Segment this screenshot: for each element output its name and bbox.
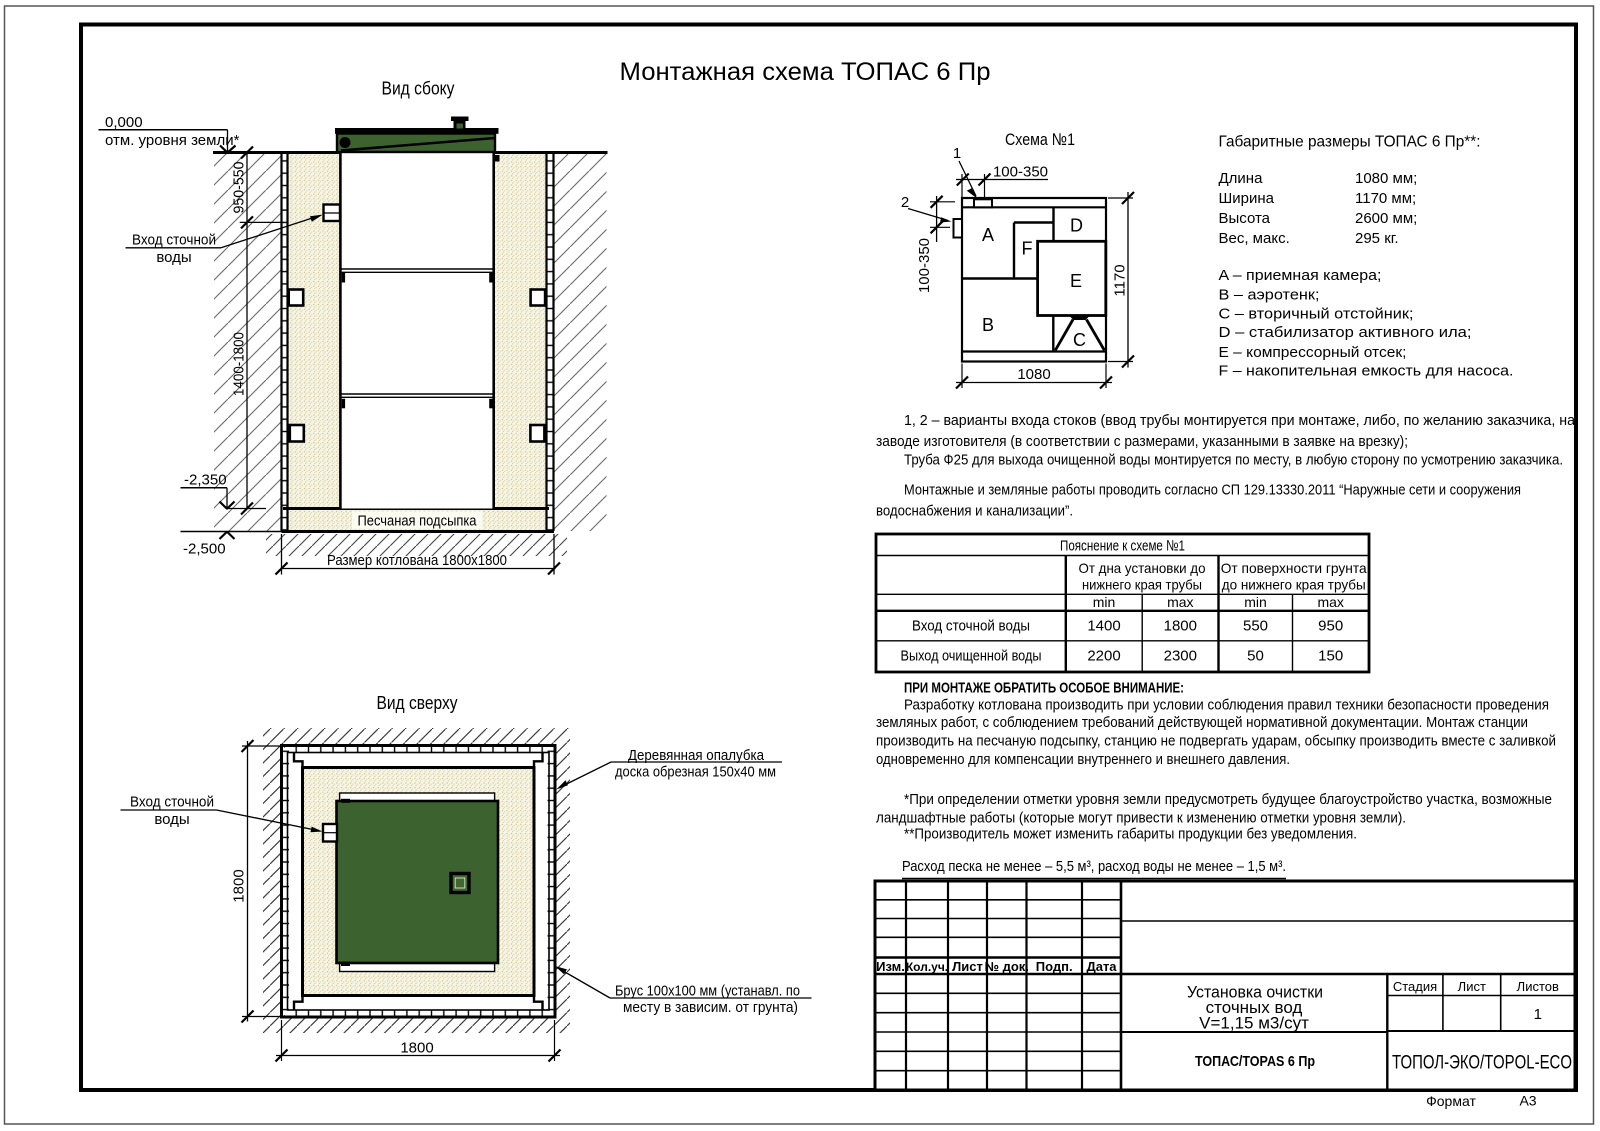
svg-text:А3: А3 — [1519, 1093, 1536, 1109]
svg-text:месту в зависим. от грунта): месту в зависим. от грунта) — [623, 999, 798, 1016]
svg-text:1400-1800: 1400-1800 — [231, 332, 248, 396]
svg-text:Пояснение к схеме №1: Пояснение к схеме №1 — [1060, 538, 1185, 555]
svg-text:C: C — [1073, 330, 1086, 350]
svg-text:Высота: Высота — [1219, 210, 1271, 227]
svg-text:295 кг.: 295 кг. — [1355, 230, 1399, 247]
svg-text:производить на песчаную подсып: производить на песчаную подсыпку, станци… — [876, 733, 1556, 750]
svg-text:1400: 1400 — [1087, 618, 1120, 635]
svg-text:1, 2 – варианты входа стоков: 1, 2 – варианты входа стоков (ввод трубы… — [904, 412, 1576, 429]
svg-text:Схема №1: Схема №1 — [1005, 130, 1075, 149]
svg-text:Вход сточной: Вход сточной — [130, 794, 214, 811]
svg-text:Ширина: Ширина — [1219, 190, 1275, 207]
svg-text:Кол.уч.: Кол.уч. — [906, 960, 948, 974]
svg-text:-2,350: -2,350 — [184, 472, 227, 489]
svg-text:F – накопительная емкость для: F – накопительная емкость для насоса. — [1219, 363, 1514, 380]
svg-text:100-350: 100-350 — [916, 238, 933, 293]
svg-text:B – аэротенк;: B – аэротенк; — [1219, 287, 1320, 304]
svg-text:ТОПАС/TOPAS 6 Пр: ТОПАС/TOPAS 6 Пр — [1195, 1053, 1315, 1070]
svg-text:550: 550 — [1243, 618, 1268, 635]
svg-text:Лист: Лист — [952, 959, 983, 974]
svg-text:1080: 1080 — [1017, 366, 1050, 383]
svg-text:100-350: 100-350 — [993, 164, 1048, 181]
svg-text:Песчаная подсыпка: Песчаная подсыпка — [358, 513, 478, 530]
svg-text:Расход песка не менее – 5,5 м³: Расход песка не менее – 5,5 м³, расход в… — [902, 858, 1286, 875]
svg-text:1800: 1800 — [400, 1040, 433, 1057]
svg-text:D – стабилизатор активного ила: D – стабилизатор активного ила; — [1219, 324, 1472, 341]
svg-text:E: E — [1070, 271, 1082, 291]
svg-text:доска обрезная 150х40 мм: доска обрезная 150х40 мм — [615, 764, 776, 781]
svg-text:От поверхности грунта: От поверхности грунта — [1221, 560, 1367, 576]
svg-text:1080 мм;: 1080 мм; — [1355, 170, 1417, 187]
svg-text:0,000: 0,000 — [105, 114, 143, 131]
svg-text:Подп.: Подп. — [1036, 959, 1073, 974]
svg-text:Разработку котлована производи: Разработку котлована производить при усл… — [904, 697, 1549, 714]
svg-text:2: 2 — [901, 194, 909, 211]
svg-text:E – компрессорный отсек;: E – компрессорный отсек; — [1219, 344, 1407, 361]
svg-text:Вход сточной воды: Вход сточной воды — [912, 618, 1030, 635]
svg-text:1: 1 — [953, 145, 961, 162]
svg-text:Длина: Длина — [1219, 170, 1264, 187]
svg-text:Монтажные и земляные работы пр: Монтажные и земляные работы проводить со… — [904, 482, 1521, 499]
svg-text:воды: воды — [156, 249, 191, 266]
svg-text:950-550: 950-550 — [231, 162, 248, 214]
svg-text:Вес, макс.: Вес, макс. — [1219, 230, 1290, 247]
svg-text:V=1,15 м3/сут: V=1,15 м3/сут — [1199, 1014, 1309, 1033]
svg-text:ПРИ МОНТАЖЕ ОБРАТИТЬ ОСОБОЕ ВН: ПРИ МОНТАЖЕ ОБРАТИТЬ ОСОБОЕ ВНИМАНИЕ: — [904, 680, 1184, 697]
svg-text:земляных работ, с соблюдением: земляных работ, с соблюдением требований… — [876, 714, 1528, 731]
svg-text:до нижнего края трубы: до нижнего края трубы — [1222, 577, 1366, 593]
svg-text:1: 1 — [1534, 1006, 1542, 1023]
svg-text:№ док.: № док. — [984, 959, 1028, 974]
svg-text:воды: воды — [154, 811, 189, 828]
svg-text:одновременно для компенсации в: одновременно для компенсации внутреннего… — [876, 751, 1290, 768]
svg-text:От дна установки до: От дна установки до — [1079, 560, 1206, 576]
svg-text:водоснабжения и канализации”.: водоснабжения и канализации”. — [876, 503, 1073, 520]
svg-text:Выход очищенной воды: Выход очищенной воды — [901, 648, 1042, 665]
svg-text:-2,500: -2,500 — [183, 541, 226, 558]
svg-text:Размер котлована 1800х1800: Размер котлована 1800х1800 — [327, 552, 507, 569]
svg-text:заводе изготовителя (в соответ: заводе изготовителя (в соответствии с ра… — [876, 433, 1408, 450]
svg-text:Вход сточной: Вход сточной — [132, 232, 216, 249]
svg-text:Габаритные размеры ТОПАС 6 Пр*: Габаритные размеры ТОПАС 6 Пр**: — [1219, 134, 1481, 151]
svg-text:C – вторичный отстойник;: C – вторичный отстойник; — [1219, 306, 1414, 323]
svg-text:нижнего края трубы: нижнего края трубы — [1082, 577, 1202, 593]
svg-text:min: min — [1093, 594, 1116, 610]
svg-text:50: 50 — [1247, 648, 1264, 665]
svg-text:Брус 100х100 мм (устанавл. по: Брус 100х100 мм (устанавл. по — [615, 983, 800, 1000]
svg-text:150: 150 — [1318, 648, 1343, 665]
svg-text:1170: 1170 — [1112, 264, 1129, 296]
svg-text:1800: 1800 — [231, 869, 248, 902]
svg-text:Стадия: Стадия — [1393, 979, 1437, 994]
svg-text:B: B — [982, 315, 994, 335]
svg-text:отм. уровня земли*: отм. уровня земли* — [105, 132, 240, 149]
svg-text:min: min — [1244, 594, 1267, 610]
svg-text:950: 950 — [1318, 618, 1343, 635]
svg-text:F: F — [1022, 239, 1033, 259]
svg-text:max: max — [1167, 594, 1193, 610]
svg-text:D: D — [1070, 216, 1083, 236]
svg-text:Формат: Формат — [1426, 1093, 1476, 1109]
svg-text:max: max — [1317, 594, 1343, 610]
svg-text:1800: 1800 — [1164, 618, 1197, 635]
svg-text:1170 мм;: 1170 мм; — [1355, 190, 1416, 207]
svg-text:Изм.: Изм. — [876, 959, 905, 974]
svg-text:Вид сбоку: Вид сбоку — [382, 79, 455, 99]
svg-text:Лист: Лист — [1458, 979, 1486, 994]
svg-text:Листов: Листов — [1517, 979, 1559, 994]
svg-text:ТОПОЛ-ЭКО/TOPOL-ECO: ТОПОЛ-ЭКО/TOPOL-ECO — [1392, 1053, 1572, 1074]
svg-text:ландшафтные работы (которые мо: ландшафтные работы (которые могут привес… — [876, 809, 1406, 826]
svg-text:2300: 2300 — [1164, 648, 1197, 665]
svg-text:Вид сверху: Вид сверху — [377, 693, 458, 713]
svg-text:**Производитель может изменить: **Производитель может изменить габариты … — [904, 826, 1357, 843]
svg-text:Дата: Дата — [1086, 959, 1117, 974]
svg-text:A – приемная камера;: A – приемная камера; — [1219, 267, 1382, 284]
svg-text:Монтажная схема ТОПАС 6 Пр: Монтажная схема ТОПАС 6 Пр — [620, 58, 991, 86]
svg-text:*При определении отметки уровн: *При определении отметки уровня земли пр… — [904, 791, 1552, 808]
svg-text:2200: 2200 — [1087, 648, 1120, 665]
svg-text:2600 мм;: 2600 мм; — [1355, 210, 1417, 227]
svg-text:A: A — [982, 225, 994, 245]
svg-text:Труба Ф25 для выхода очищенной: Труба Ф25 для выхода очищенной воды монт… — [904, 452, 1563, 469]
